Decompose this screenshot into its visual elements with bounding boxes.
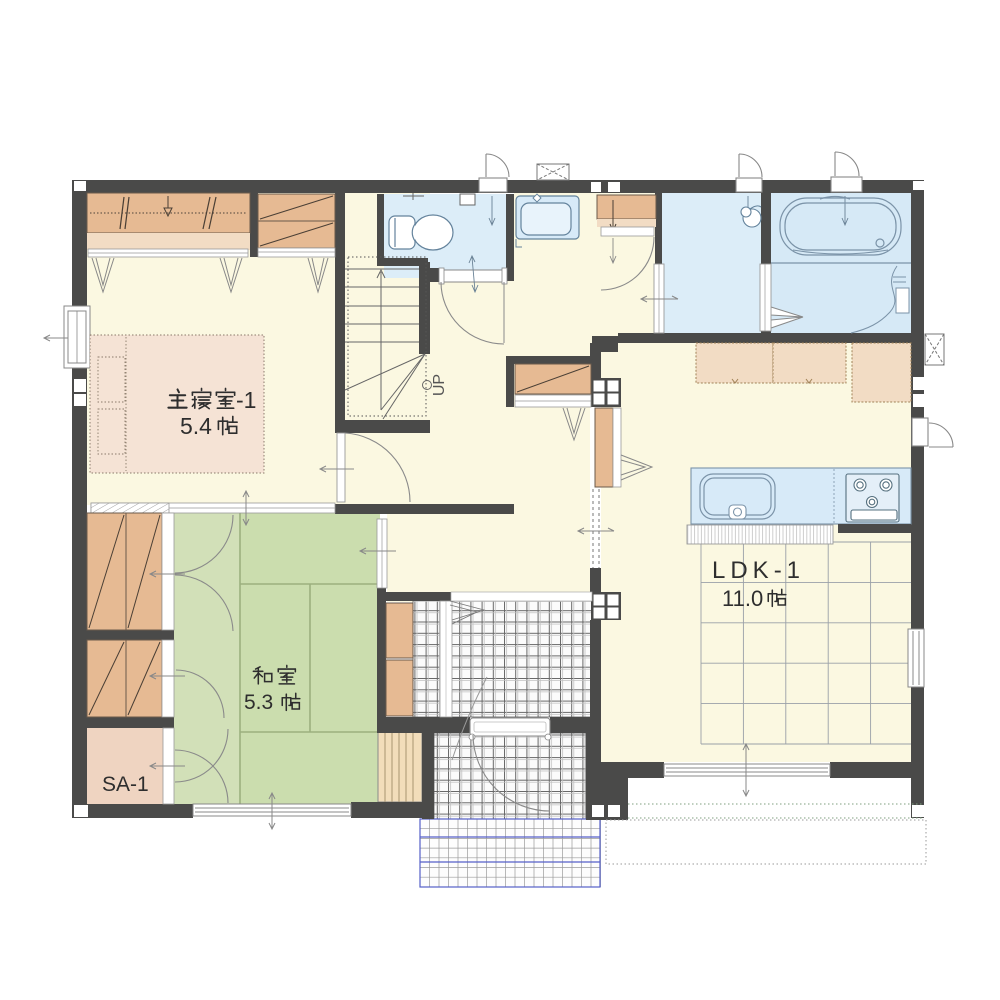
- svg-text:11.0: 11.0: [722, 586, 763, 611]
- svg-text:-1: -1: [236, 387, 256, 413]
- svg-text:5.4: 5.4: [180, 413, 212, 439]
- svg-text:UP: UP: [431, 374, 448, 396]
- svg-text:5.3: 5.3: [244, 691, 273, 714]
- svg-text:LDK-1: LDK-1: [712, 557, 805, 584]
- svg-text:SA-1: SA-1: [102, 773, 149, 796]
